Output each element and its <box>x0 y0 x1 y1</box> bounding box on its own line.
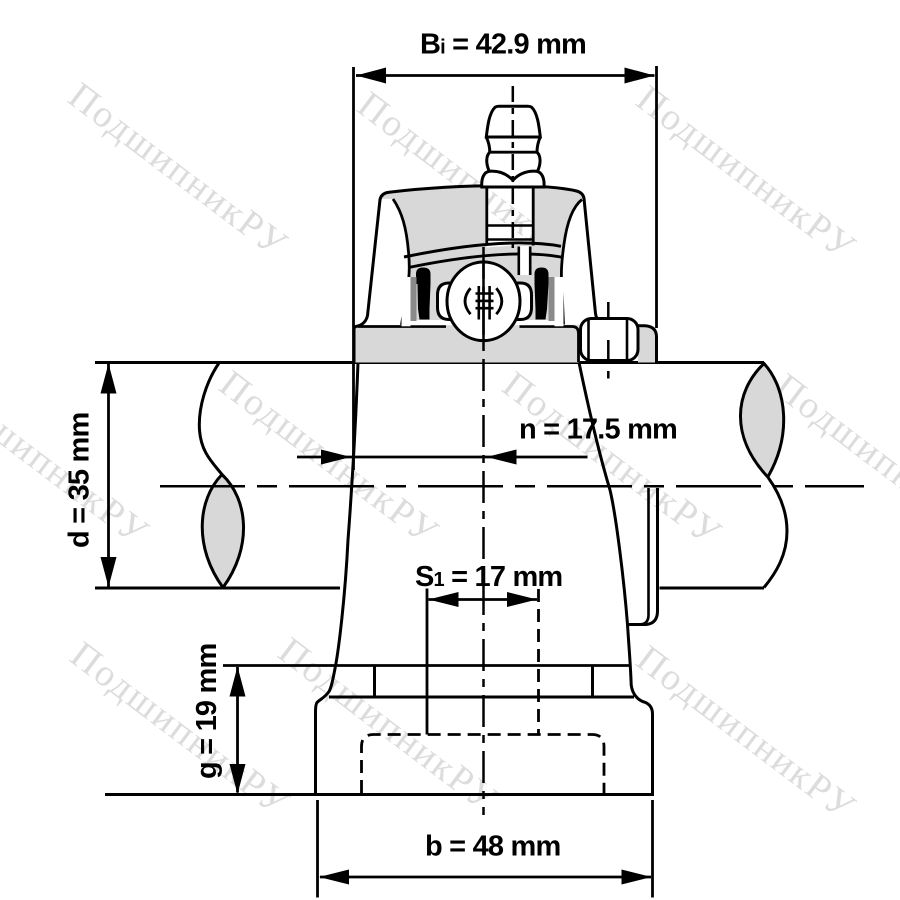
svg-text:b = 48 mm: b = 48 mm <box>425 831 560 863</box>
svg-text:Bi = 42.9 mm: Bi = 42.9 mm <box>420 29 586 61</box>
svg-text:n = 17.5 mm: n = 17.5 mm <box>519 414 677 446</box>
svg-text:g = 19 mm: g = 19 mm <box>191 644 223 779</box>
svg-text:d = 35 mm: d = 35 mm <box>64 413 96 548</box>
